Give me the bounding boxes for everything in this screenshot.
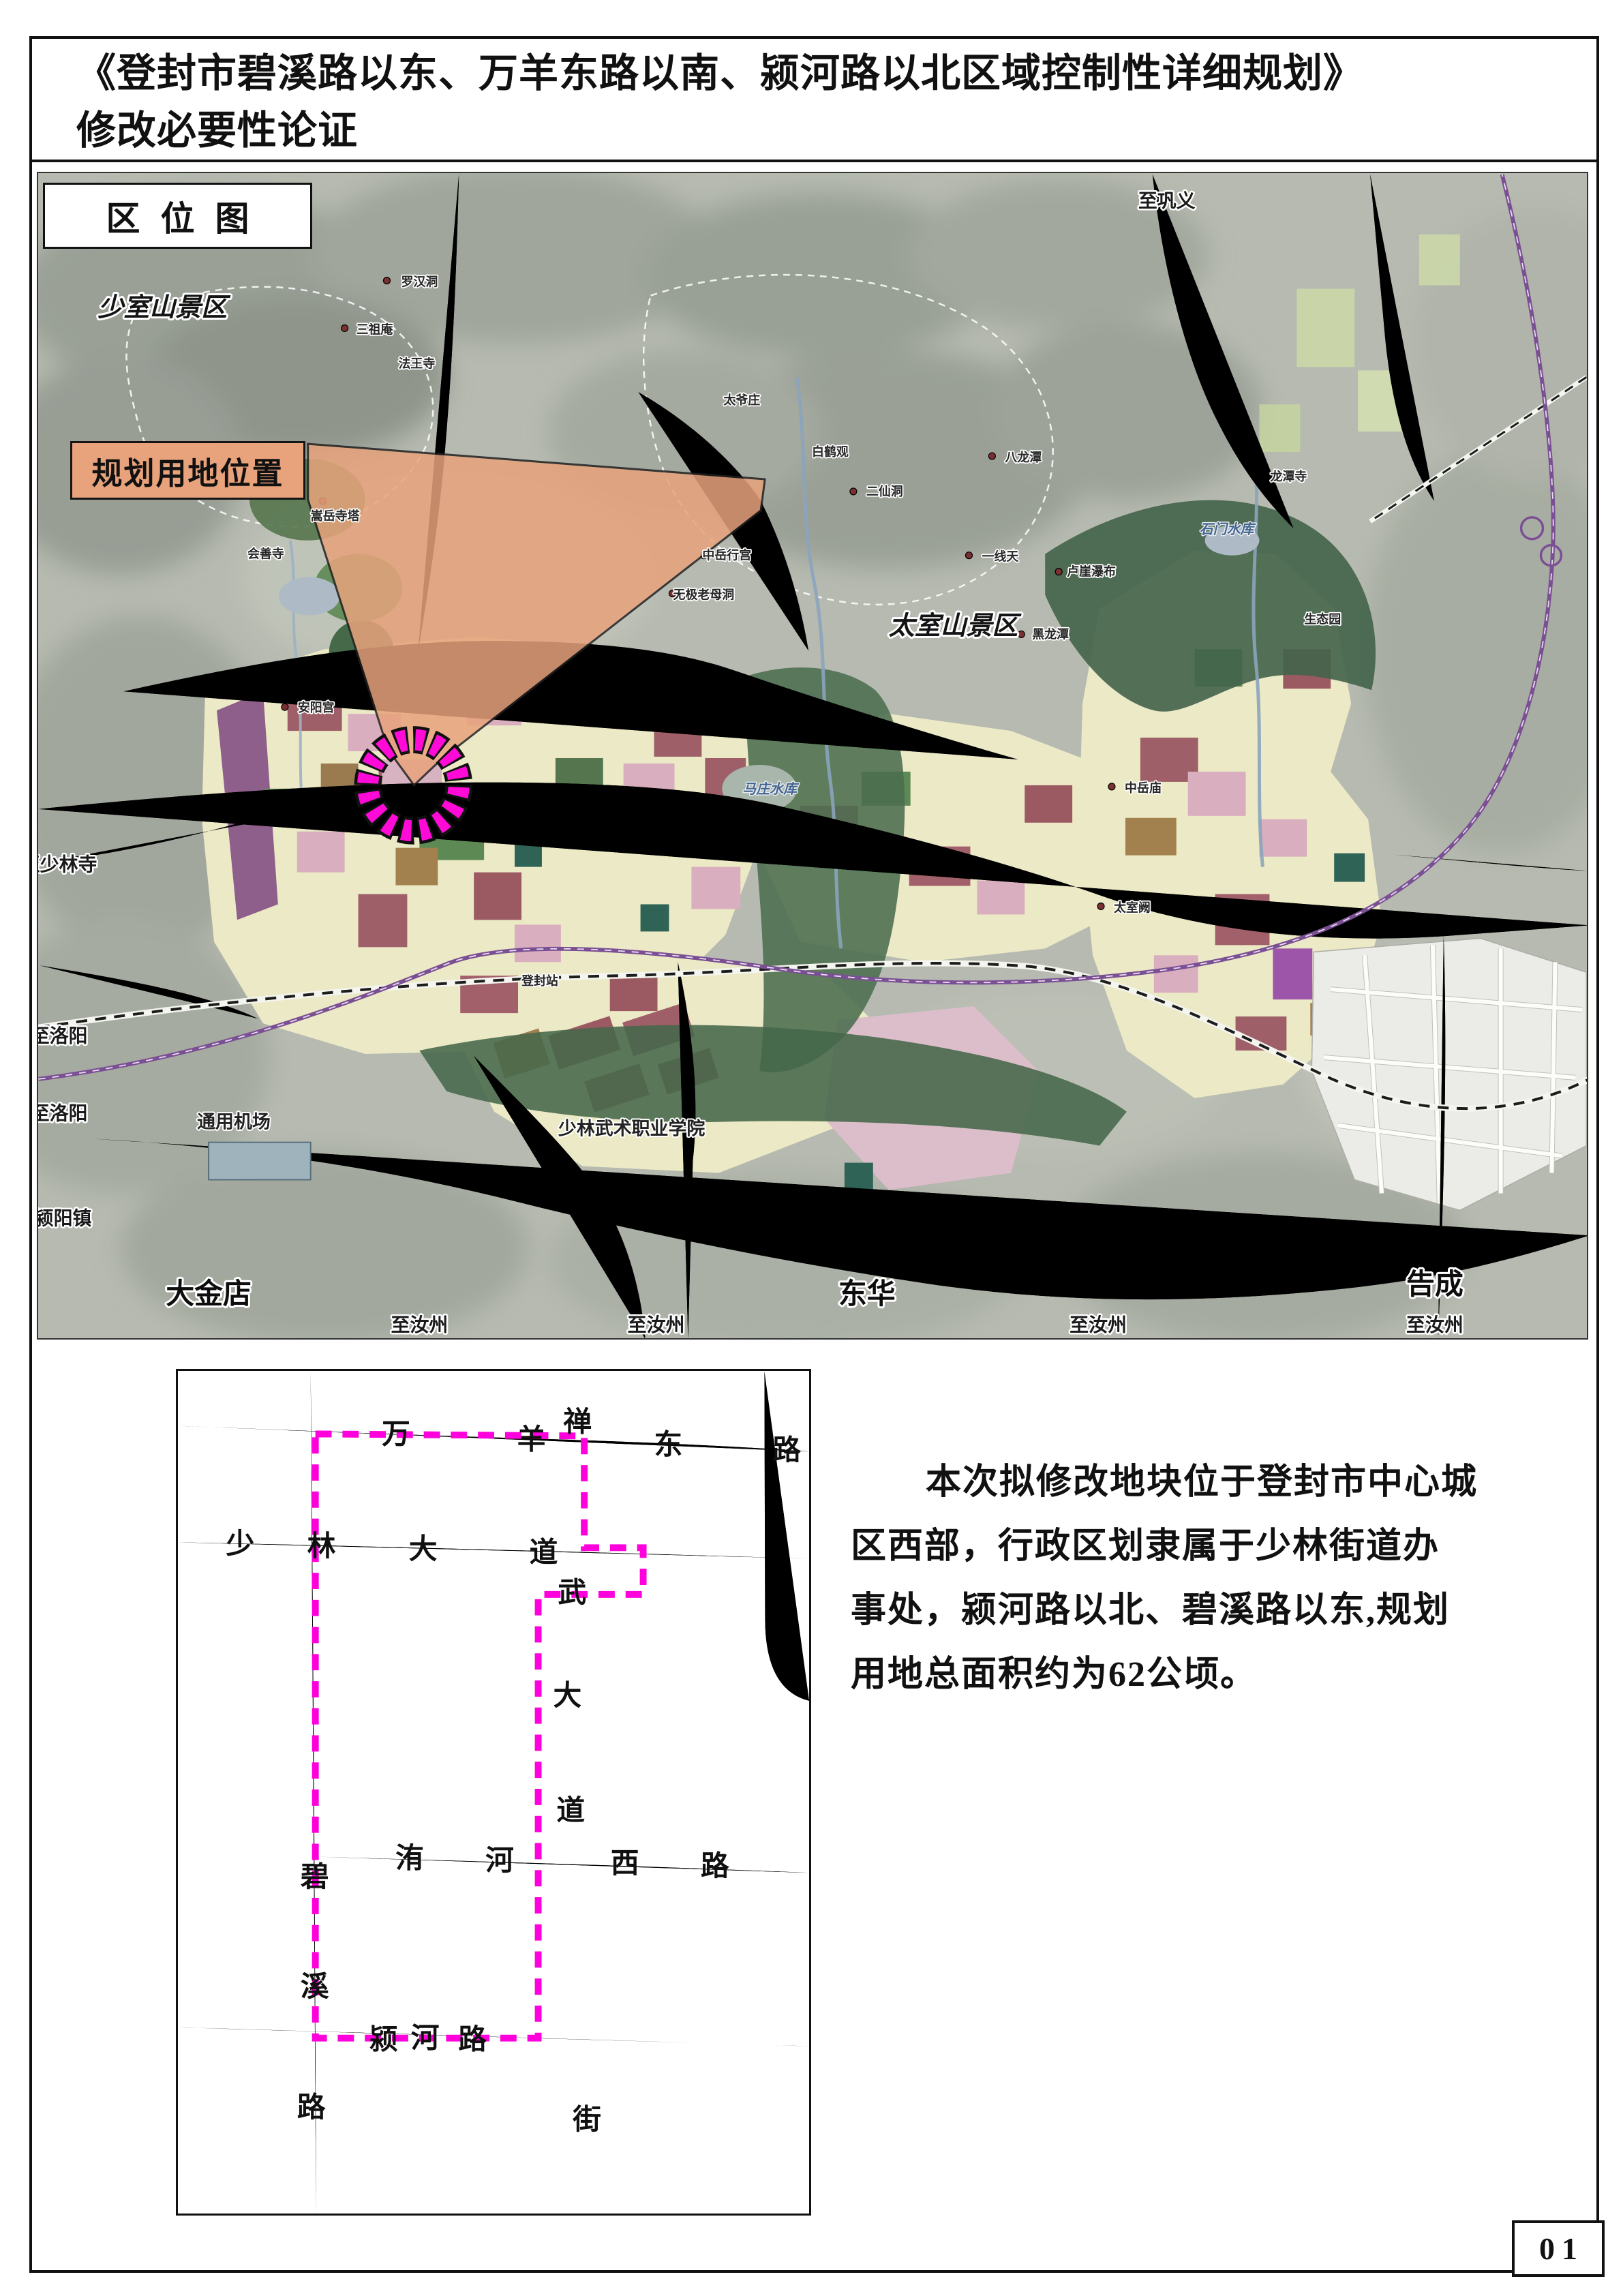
- schematic-road-label: 颍: [369, 2024, 398, 2056]
- reservoir: [279, 577, 340, 616]
- schematic-road-label: 路: [297, 2091, 326, 2124]
- map-label: 至洛阳: [38, 1025, 87, 1047]
- map-label: 至颍阳镇: [38, 1207, 92, 1229]
- schematic-road-label: 羊: [517, 1423, 546, 1455]
- map-label: 中岳庙: [1125, 781, 1162, 795]
- schematic-road-label: 少: [226, 1528, 255, 1560]
- title-line-1: 《登封市碧溪路以东、万羊东路以南、颍河路以北区域控制性详细规划》: [76, 45, 1562, 102]
- paragraph-line-4: 用地总面积约为62公顷。: [851, 1643, 1605, 1707]
- schematic-road-label: 河: [485, 1845, 514, 1877]
- map-label: 通用机场: [197, 1112, 271, 1132]
- site-callout-label: 规划用地位置: [91, 449, 284, 493]
- paragraph-line-1: 本次拟修改地块位于登封市中心城: [851, 1451, 1605, 1515]
- title-divider: [29, 160, 1599, 162]
- schematic-roads: [178, 1372, 809, 2214]
- map-label: 大金店: [166, 1278, 252, 1310]
- map-label: 告成: [1406, 1269, 1463, 1301]
- map-label: 马庄水库: [742, 781, 800, 797]
- schematic-road-label: 大: [409, 1533, 438, 1565]
- site-boundary: [316, 1434, 643, 2038]
- map-label: 八龙潭: [1005, 450, 1042, 464]
- schematic-roads-casing: [178, 1372, 809, 2214]
- schematic-map: 万羊东路禅武大道少林大道碧溪路洧河西路颍河路街: [176, 1369, 811, 2216]
- schematic-road-label: 洧: [395, 1842, 424, 1874]
- map-label: 石门水库: [1200, 522, 1257, 537]
- map-label: 罗汉洞: [401, 275, 438, 289]
- schematic-road-label: 东: [654, 1429, 682, 1461]
- schematic-graphic: 万羊东路禅武大道少林大道碧溪路洧河西路颍河路街: [178, 1371, 809, 2214]
- map-label: 法王寺: [398, 356, 435, 370]
- map-legend-label: 区位图: [86, 192, 270, 241]
- map-label: 二仙洞: [866, 484, 903, 498]
- site-callout-box: 规划用地位置: [70, 441, 305, 500]
- map-label: 会善寺: [247, 547, 284, 561]
- airport-runway: [209, 1143, 311, 1180]
- schematic-road-label: 溪: [301, 1971, 329, 2003]
- paragraph-line-3: 事处，颍河路以北、碧溪路以东,规划: [851, 1579, 1605, 1643]
- map-label: 至汝州: [1070, 1314, 1127, 1336]
- map-label: 至少林寺: [38, 854, 97, 876]
- schematic-road-label: 道: [530, 1537, 558, 1569]
- map-label: 少林武术职业学院: [558, 1118, 705, 1139]
- map-label: 中岳行宫: [702, 548, 751, 562]
- map-label: 至巩义: [1138, 190, 1196, 212]
- schematic-road-label: 街: [572, 2104, 601, 2136]
- document-title: 《登封市碧溪路以东、万羊东路以南、颍河路以北区域控制性详细规划》 修改必要性论证: [76, 45, 1562, 160]
- map-label: 黑龙潭: [1032, 626, 1069, 641]
- map-label: 一线天: [982, 549, 1018, 564]
- schematic-road-label: 路: [772, 1434, 801, 1466]
- map-label: 至汝州: [628, 1314, 685, 1336]
- schematic-road-label: 河: [411, 2023, 440, 2055]
- map-label: 安阳宫: [298, 700, 335, 714]
- map-label: 嵩岳寺塔: [311, 509, 361, 523]
- map-label: 白鹤观: [812, 444, 849, 459]
- map-label: 太爷庄: [723, 393, 760, 407]
- schematic-road-label: 西: [611, 1848, 639, 1879]
- schematic-road-label: 路: [458, 2024, 487, 2056]
- map-label: 龙潭寺: [1270, 469, 1307, 483]
- schematic-road-label: 路: [701, 1850, 729, 1882]
- map-label: 生态园: [1304, 611, 1341, 626]
- schematic-road-label: 道: [556, 1795, 585, 1827]
- map-label: 太室阙: [1114, 900, 1151, 914]
- document-page: 《登封市碧溪路以东、万羊东路以南、颍河路以北区域控制性详细规划》 修改必要性论证: [0, 0, 1623, 2296]
- schematic-road-label: 碧: [301, 1861, 329, 1893]
- map-legend-box: 区位图: [43, 183, 312, 249]
- map-label: 东华: [838, 1278, 896, 1310]
- map-label: 少室山景区: [97, 294, 231, 322]
- page-number: 01: [1532, 2231, 1584, 2267]
- map-label: 太室山景区: [889, 611, 1022, 640]
- map-label: 三祖庵: [357, 322, 394, 336]
- schematic-road-label: 武: [558, 1577, 586, 1609]
- schematic-road-label: 林: [307, 1530, 336, 1562]
- location-map: 少室山景区太室山景区至巩义至少林寺至洛阳至洛阳至颍阳镇大金店东华告成至汝州至汝州…: [37, 172, 1588, 1340]
- title-line-2: 修改必要性论证: [76, 102, 1562, 160]
- map-label: 至汝州: [1406, 1314, 1463, 1336]
- map-label: 至汝州: [391, 1314, 448, 1336]
- paragraph-line-2: 区西部，行政区划隶属于少林街道办: [851, 1515, 1605, 1579]
- map-label: 卢崖瀑布: [1067, 564, 1116, 579]
- gaocheng-grid-town: [1311, 938, 1586, 1210]
- location-map-graphic: 少室山景区太室山景区至巩义至少林寺至洛阳至洛阳至颍阳镇大金店东华告成至汝州至汝州…: [38, 173, 1587, 1338]
- map-label: 至洛阳: [38, 1103, 87, 1125]
- page-number-box: 01: [1512, 2220, 1605, 2277]
- map-label: 无极老母洞: [673, 588, 735, 602]
- map-label: 登封站: [521, 973, 558, 988]
- description-paragraph: 本次拟修改地块位于登封市中心城 区西部，行政区划隶属于少林街道办 事处，颍河路以…: [851, 1451, 1605, 1707]
- schematic-road-label: 万: [382, 1419, 410, 1450]
- schematic-road-label: 禅: [563, 1406, 592, 1438]
- schematic-road-label: 大: [553, 1680, 581, 1712]
